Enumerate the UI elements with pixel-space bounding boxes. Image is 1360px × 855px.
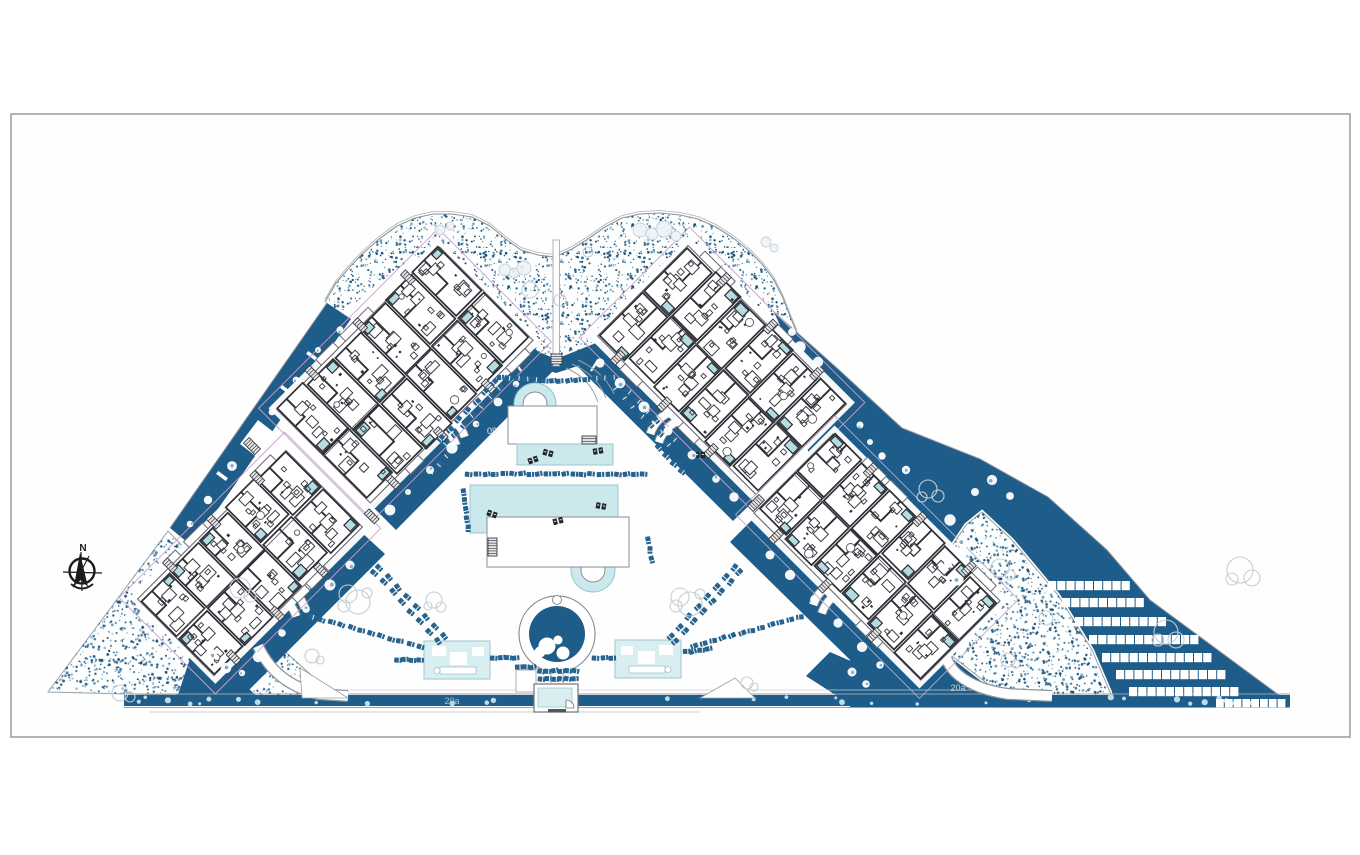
svg-text:20a: 20a <box>444 696 459 706</box>
svg-text:N: N <box>79 543 86 554</box>
svg-text:09: 09 <box>487 426 497 436</box>
svg-text:20a: 20a <box>950 683 965 693</box>
